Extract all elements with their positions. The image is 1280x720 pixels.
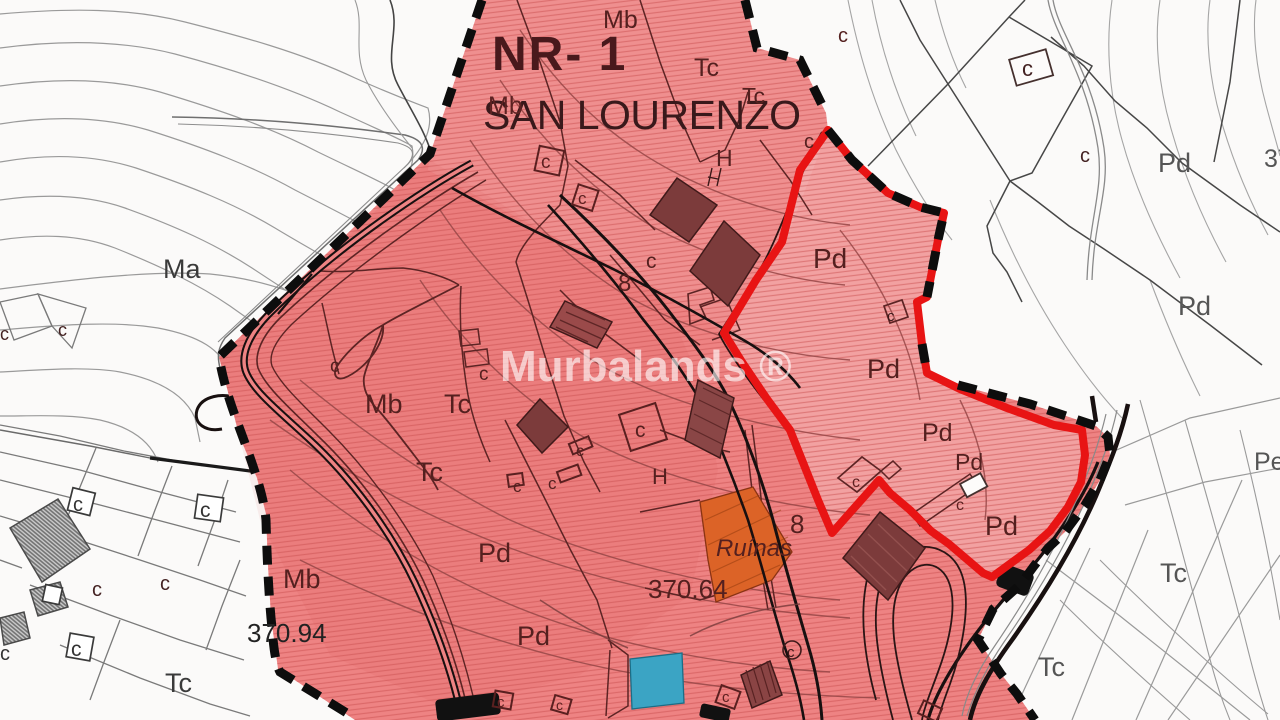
svg-text:370.94: 370.94 — [247, 618, 327, 648]
svg-text:Tc: Tc — [1038, 652, 1065, 682]
svg-text:Pd: Pd — [813, 243, 847, 274]
svg-text:Pd: Pd — [478, 538, 511, 568]
svg-text:Pd: Pd — [955, 449, 983, 475]
svg-text:Tc: Tc — [742, 83, 765, 109]
svg-text:c: c — [200, 499, 211, 522]
svg-text:c: c — [160, 573, 170, 595]
svg-text:H: H — [716, 145, 733, 171]
svg-text:c: c — [576, 443, 584, 460]
svg-text:c: c — [635, 419, 646, 442]
svg-text:c: c — [887, 308, 895, 325]
svg-text:Pd: Pd — [517, 621, 550, 651]
svg-text:Ruínas: Ruínas — [716, 535, 792, 562]
svg-text:c: c — [578, 189, 587, 208]
svg-text:c: c — [73, 494, 83, 516]
svg-text:c: c — [497, 694, 505, 711]
svg-text:c: c — [541, 152, 551, 173]
svg-text:Pd: Pd — [922, 419, 953, 447]
svg-text:c: c — [58, 320, 67, 340]
svg-text:NR- 1: NR- 1 — [492, 28, 627, 81]
svg-text:c: c — [646, 250, 657, 273]
svg-text:Tc: Tc — [1160, 558, 1187, 588]
svg-text:Murbalands ®: Murbalands ® — [500, 342, 792, 391]
svg-text:c: c — [0, 643, 10, 665]
svg-text:37: 37 — [1264, 145, 1280, 173]
svg-text:c: c — [956, 497, 964, 514]
svg-text:c: c — [722, 689, 730, 706]
svg-text:c: c — [804, 131, 814, 153]
svg-text:c: c — [787, 644, 795, 661]
svg-text:c: c — [852, 474, 860, 491]
svg-text:c: c — [1022, 56, 1033, 81]
svg-text:H: H — [652, 464, 668, 489]
svg-text:Mb: Mb — [365, 389, 403, 419]
svg-text:Mb: Mb — [603, 6, 638, 34]
svg-text:Ma: Ma — [163, 254, 201, 284]
svg-text:Pd: Pd — [985, 511, 1018, 541]
svg-text:Tc: Tc — [694, 54, 719, 82]
svg-text:c: c — [556, 697, 563, 713]
svg-text:Pd: Pd — [867, 354, 900, 384]
svg-text:370.64: 370.64 — [648, 574, 728, 604]
svg-text:Pd: Pd — [1158, 148, 1191, 178]
svg-text:Tc: Tc — [444, 389, 471, 419]
svg-text:c: c — [0, 324, 9, 344]
svg-text:c: c — [479, 364, 489, 385]
svg-text:c: c — [330, 356, 340, 377]
svg-text:Tc: Tc — [416, 457, 443, 487]
svg-text:8: 8 — [618, 270, 631, 297]
svg-text:c: c — [548, 474, 557, 493]
svg-text:Tc: Tc — [165, 668, 192, 698]
svg-text:Pe: Pe — [1254, 448, 1280, 476]
svg-text:Mb: Mb — [283, 564, 321, 594]
svg-text:c: c — [838, 25, 848, 47]
svg-text:Pd: Pd — [1178, 291, 1211, 321]
svg-text:c: c — [71, 638, 82, 661]
svg-text:c: c — [513, 477, 522, 496]
svg-text:c: c — [1080, 145, 1090, 167]
svg-text:8: 8 — [790, 509, 804, 539]
svg-text:c: c — [92, 579, 102, 601]
svg-text:Mb: Mb — [488, 92, 523, 120]
